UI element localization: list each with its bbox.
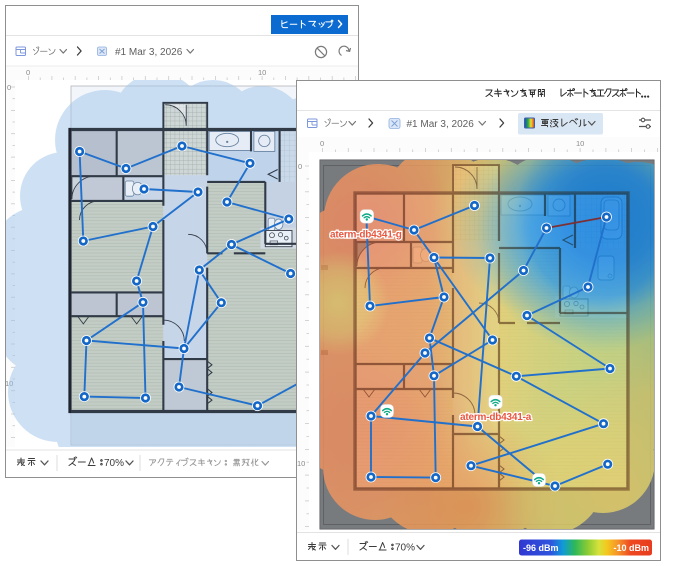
svg-text:10: 10	[297, 459, 305, 468]
svg-text:#1 Mar 3, 2026: #1 Mar 3, 2026	[407, 119, 475, 130]
svg-text:-10 dBm: -10 dBm	[613, 543, 649, 553]
svg-text:10: 10	[576, 139, 584, 148]
svg-text:0: 0	[298, 162, 302, 171]
svg-text:-96 dBm: -96 dBm	[523, 543, 559, 553]
svg-text:70%: 70%	[104, 458, 124, 469]
svg-text:aterm-db4341-g: aterm-db4341-g	[330, 230, 402, 241]
svg-text:70%: 70%	[395, 543, 415, 554]
svg-text:0: 0	[26, 68, 30, 77]
svg-text:10: 10	[258, 68, 266, 77]
svg-text:aterm-db4341-a: aterm-db4341-a	[460, 412, 532, 423]
svg-text:#1 Mar 3, 2026: #1 Mar 3, 2026	[115, 47, 183, 58]
svg-text:0: 0	[320, 139, 324, 148]
svg-text:0: 0	[7, 83, 11, 92]
